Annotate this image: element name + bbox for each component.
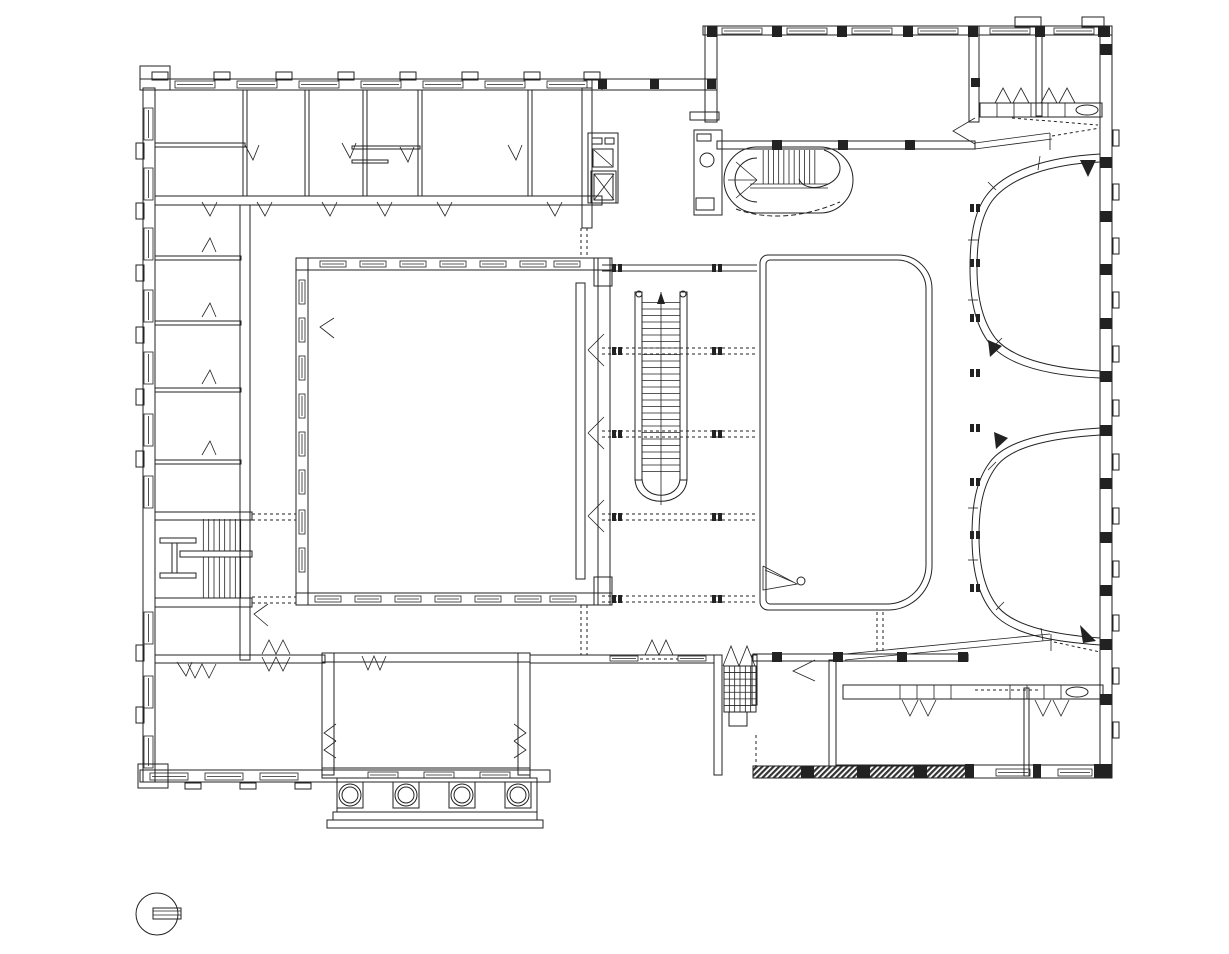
floor-plan (0, 0, 1229, 954)
floor-plan-page (0, 0, 1229, 954)
column-marks-layer (598, 26, 1112, 778)
balcony-curves-layer (635, 147, 1100, 645)
structural-grid-layer (602, 204, 980, 603)
walls-layer (136, 17, 1119, 919)
